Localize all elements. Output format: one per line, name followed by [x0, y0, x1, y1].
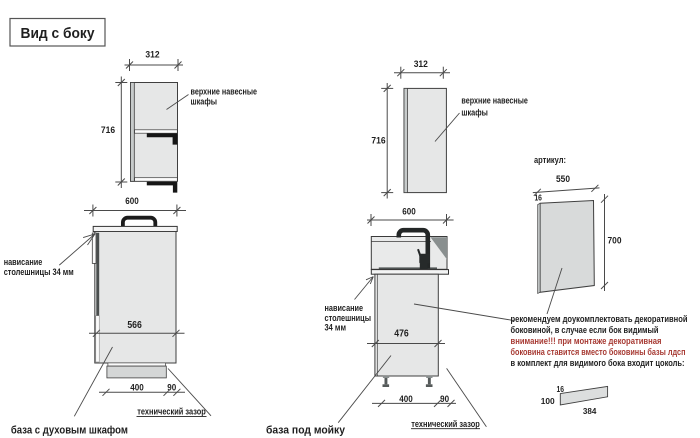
svg-text:столешницы: столешницы	[325, 313, 372, 323]
svg-text:база под мойку: база под мойку	[266, 424, 346, 436]
svg-text:716: 716	[101, 125, 115, 136]
svg-text:312: 312	[145, 50, 159, 61]
svg-text:боковина ставится вместо боков: боковина ставится вместо боковины базы л…	[511, 347, 686, 357]
svg-text:Вид с боку: Вид с боку	[21, 26, 95, 42]
svg-text:верхние навесные: верхние навесные	[461, 96, 528, 106]
svg-text:16: 16	[534, 194, 542, 203]
svg-text:716: 716	[371, 136, 385, 147]
svg-text:рекомендуем доукомплектовать д: рекомендуем доукомплектовать декоративно…	[511, 314, 688, 324]
svg-text:312: 312	[414, 59, 428, 70]
svg-text:700: 700	[608, 236, 622, 247]
svg-text:600: 600	[402, 207, 416, 218]
svg-text:технический зазор: технический зазор	[411, 419, 480, 429]
svg-text:верхние навесные: верхние навесные	[191, 87, 258, 97]
svg-text:боковиной, в случае если бок в: боковиной, в случае если бок видимый	[511, 325, 659, 335]
svg-text:550: 550	[556, 174, 570, 185]
svg-text:шкафы: шкафы	[191, 96, 218, 106]
svg-text:нависание: нависание	[325, 303, 364, 313]
svg-text:технический зазор: технический зазор	[137, 407, 206, 417]
svg-text:600: 600	[125, 196, 139, 207]
svg-text:нависание: нависание	[4, 257, 43, 267]
svg-text:база с духовым шкафом: база с духовым шкафом	[11, 424, 128, 436]
svg-text:476: 476	[394, 329, 409, 340]
svg-text:артикул:: артикул:	[534, 155, 566, 166]
svg-text:566: 566	[127, 320, 142, 331]
svg-text:384: 384	[583, 406, 597, 416]
svg-text:столешницы 34 мм: столешницы 34 мм	[4, 267, 74, 277]
svg-text:шкафы: шкафы	[461, 107, 488, 117]
svg-text:100: 100	[541, 396, 555, 406]
svg-text:16: 16	[557, 385, 565, 394]
svg-text:34 мм: 34 мм	[325, 322, 347, 332]
svg-text:в комплект для видимого бока в: в комплект для видимого бока входит цоко…	[511, 358, 685, 368]
svg-text:внимание!!! при монтаже декора: внимание!!! при монтаже декоративная	[511, 336, 662, 346]
